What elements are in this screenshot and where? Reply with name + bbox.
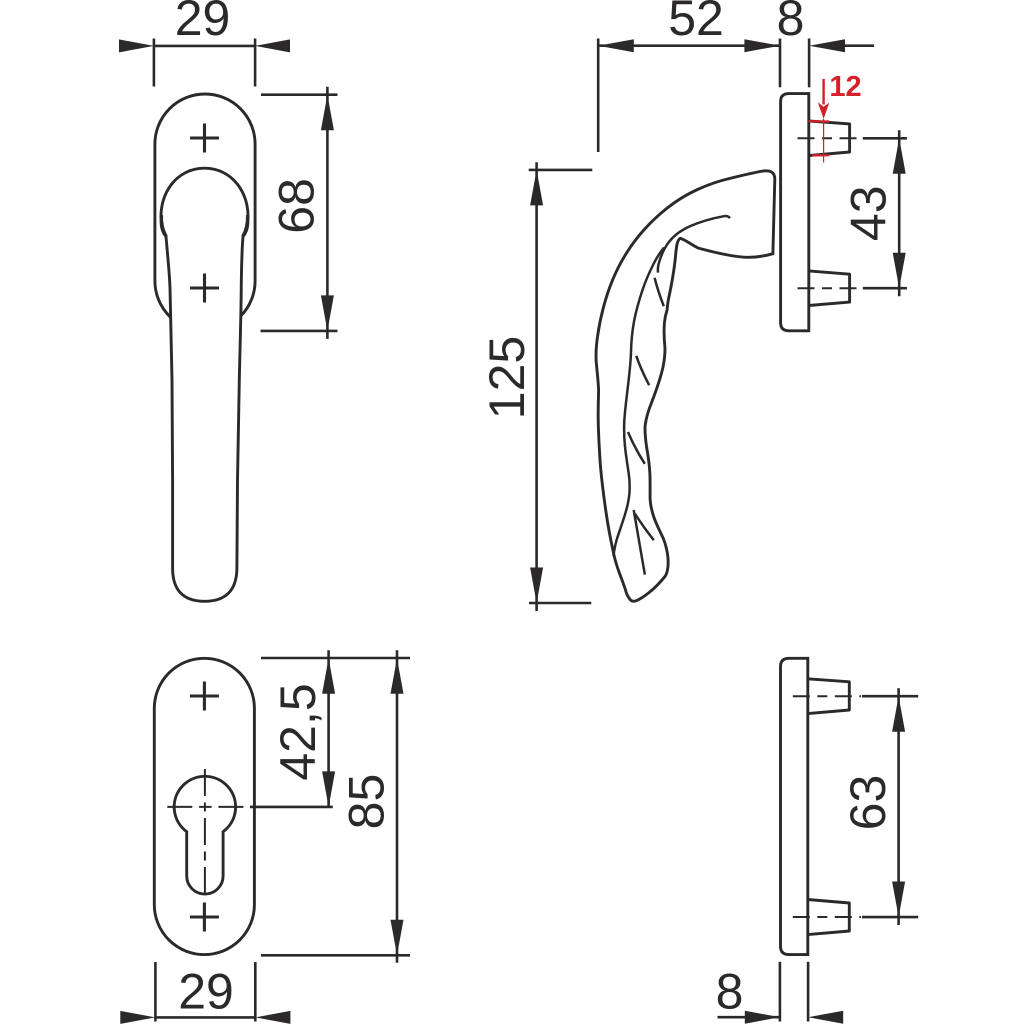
svg-text:63: 63 (840, 775, 896, 831)
svg-text:125: 125 (479, 336, 535, 419)
svg-text:43: 43 (841, 185, 897, 241)
svg-text:12: 12 (829, 71, 861, 103)
svg-text:68: 68 (269, 178, 325, 234)
svg-text:8: 8 (777, 0, 805, 46)
svg-text:8: 8 (716, 964, 744, 1020)
svg-text:52: 52 (668, 0, 724, 46)
svg-text:42,5: 42,5 (270, 683, 326, 780)
svg-text:29: 29 (175, 0, 231, 46)
svg-text:29: 29 (178, 964, 234, 1020)
svg-text:85: 85 (339, 774, 395, 830)
